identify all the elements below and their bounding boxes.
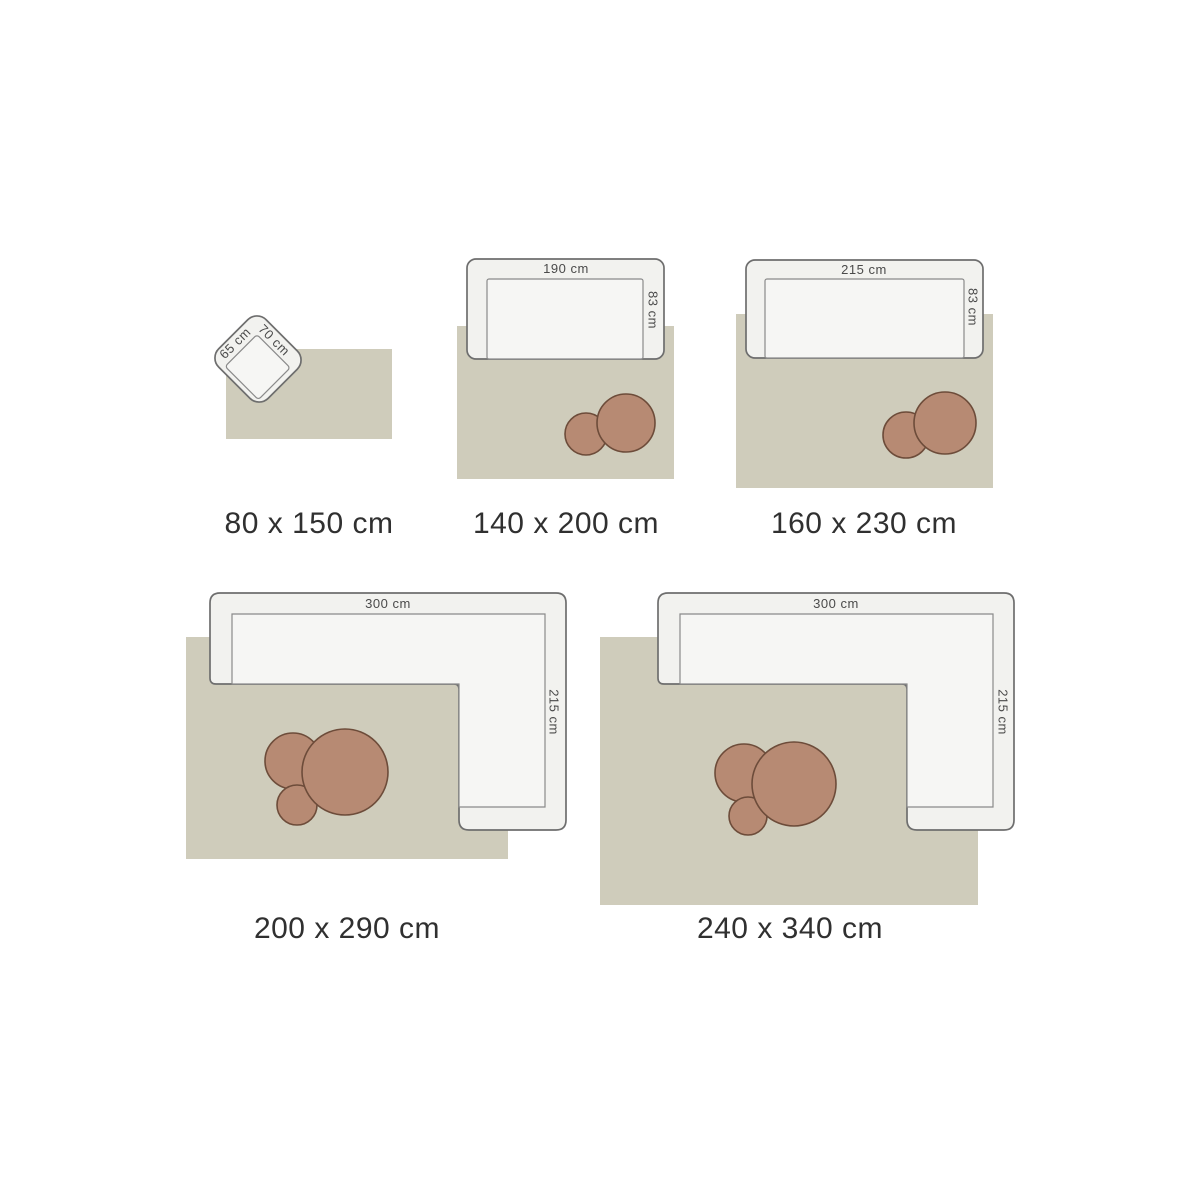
scene-140x200: 190 cm 83 cm 140 x 200 cm (457, 259, 674, 540)
coffee-table-large (597, 394, 655, 452)
scene-240x340: 300 cm 215 cm 240 x 340 cm (600, 593, 1014, 945)
corner-sofa-width-label: 300 cm (813, 596, 859, 611)
coffee-table-large (914, 392, 976, 454)
coffee-table-large (752, 742, 836, 826)
corner-sofa-width-label: 300 cm (365, 596, 411, 611)
sofa-seat (487, 279, 643, 359)
corner-sofa-depth-label: 215 cm (996, 689, 1011, 735)
sofa-depth-label: 83 cm (966, 288, 981, 326)
sofa: 215 cm 83 cm (746, 260, 983, 358)
corner-sofa-depth-label-group: 215 cm (547, 689, 562, 735)
corner-sofa-depth-label: 215 cm (547, 689, 562, 735)
rug-size-guide-diagram: 65 cm 70 cm 80 x 150 cm 190 cm 83 cm 140… (0, 0, 1200, 1200)
scene-80x150: 65 cm 70 cm 80 x 150 cm (210, 311, 394, 540)
sofa-depth-label-group: 83 cm (966, 288, 981, 326)
sofa-seat (765, 279, 964, 358)
size-label: 240 x 340 cm (697, 912, 883, 945)
sofa-width-label: 190 cm (543, 261, 589, 276)
size-label: 80 x 150 cm (225, 507, 394, 540)
scene-160x230: 215 cm 83 cm 160 x 230 cm (736, 260, 993, 540)
sofa-depth-label: 83 cm (646, 291, 661, 329)
sofa-width-label: 215 cm (841, 262, 887, 277)
sofa: 190 cm 83 cm (467, 259, 664, 359)
coffee-table-large (302, 729, 388, 815)
size-guide-canvas: 65 cm 70 cm 80 x 150 cm 190 cm 83 cm 140… (0, 0, 1200, 1200)
size-label: 160 x 230 cm (771, 507, 957, 540)
corner-sofa-depth-label-group: 215 cm (996, 689, 1011, 735)
sofa-depth-label-group: 83 cm (646, 291, 661, 329)
size-label: 140 x 200 cm (473, 507, 659, 540)
scene-200x290: 300 cm 215 cm 200 x 290 cm (186, 593, 566, 945)
size-label: 200 x 290 cm (254, 912, 440, 945)
